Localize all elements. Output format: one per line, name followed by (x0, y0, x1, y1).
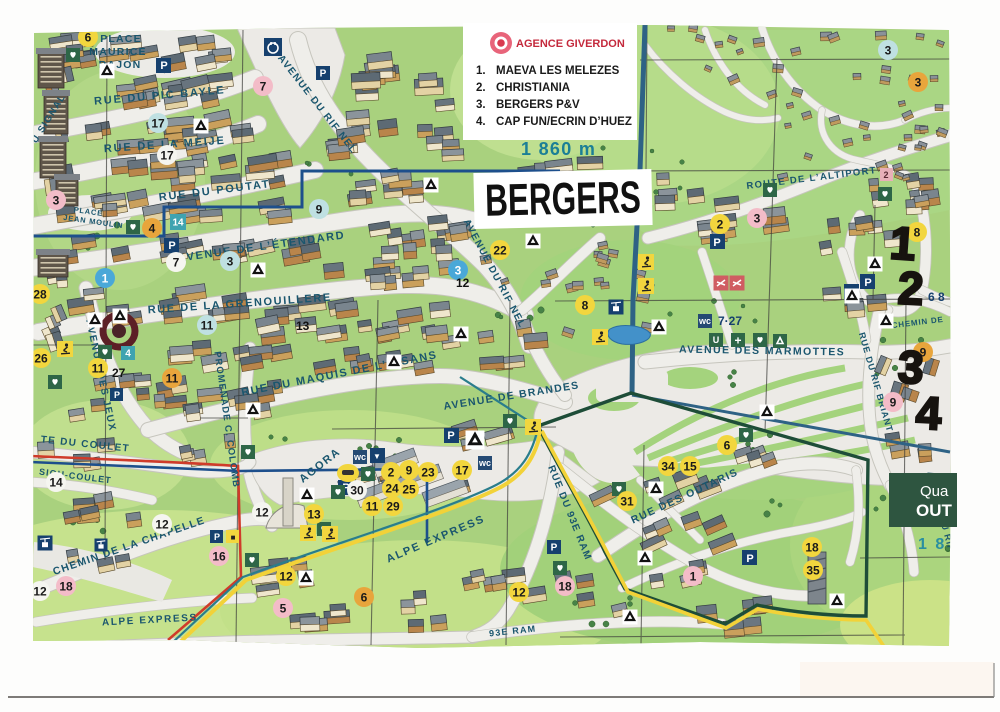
svg-text:12: 12 (279, 569, 293, 583)
svg-text:P: P (214, 532, 220, 542)
svg-text:6 8: 6 8 (928, 290, 945, 304)
svg-text:14: 14 (172, 218, 184, 229)
svg-text:P: P (114, 390, 120, 400)
svg-text:34: 34 (661, 459, 675, 473)
svg-text:2: 2 (717, 217, 724, 231)
svg-text:18: 18 (805, 540, 819, 554)
svg-text:P: P (320, 69, 327, 80)
svg-text:18: 18 (59, 579, 73, 593)
svg-text:9: 9 (316, 202, 323, 216)
svg-text:wc: wc (698, 316, 711, 326)
svg-text:12: 12 (255, 505, 269, 519)
svg-text:13: 13 (307, 507, 321, 521)
svg-text:16: 16 (212, 549, 226, 563)
svg-text:BERGERS P&V: BERGERS P&V (496, 99, 580, 111)
svg-text:28: 28 (33, 287, 47, 301)
svg-text:30: 30 (350, 483, 364, 497)
svg-text:5: 5 (280, 601, 287, 615)
svg-text:13: 13 (296, 319, 310, 333)
svg-text:■: ■ (231, 533, 236, 542)
svg-text:6: 6 (361, 590, 368, 604)
svg-text:P: P (551, 543, 558, 554)
svg-text:8: 8 (582, 298, 589, 312)
svg-text:12: 12 (155, 517, 169, 531)
svg-text:18: 18 (558, 579, 572, 593)
svg-text:+: + (734, 333, 741, 347)
svg-text:4.: 4. (476, 116, 486, 128)
svg-text:3: 3 (885, 43, 892, 57)
svg-text:12: 12 (456, 276, 470, 290)
svg-text:12: 12 (512, 585, 526, 599)
svg-text:12: 12 (33, 584, 47, 598)
svg-text:15: 15 (683, 459, 697, 473)
svg-text:CAP FUN/ECRIN D’HUEZ: CAP FUN/ECRIN D’HUEZ (496, 116, 632, 128)
svg-text:1: 1 (690, 569, 697, 583)
svg-text:BERGERS: BERGERS (485, 173, 642, 226)
svg-text:AGENCE GIVERDON: AGENCE GIVERDON (516, 38, 625, 50)
svg-text:2.: 2. (476, 82, 486, 94)
svg-text:CHRISTIANIA: CHRISTIANIA (496, 82, 570, 94)
svg-text:P: P (746, 553, 753, 565)
svg-text:P: P (168, 240, 175, 252)
svg-text:OUT: OUT (916, 501, 953, 520)
svg-text:3: 3 (754, 211, 761, 225)
svg-text:P: P (447, 430, 454, 442)
svg-text:2: 2 (883, 170, 888, 180)
svg-text:wc: wc (353, 452, 366, 462)
svg-text:4: 4 (149, 221, 156, 235)
svg-text:35: 35 (806, 563, 820, 577)
svg-text:11: 11 (92, 361, 105, 375)
svg-text:9: 9 (890, 395, 897, 409)
svg-text:11: 11 (366, 499, 379, 513)
svg-text:4: 4 (125, 349, 131, 360)
svg-text:P: P (713, 237, 720, 249)
svg-text:▼: ▼ (373, 452, 381, 461)
svg-text:P: P (864, 277, 871, 289)
svg-text:U: U (713, 335, 720, 345)
svg-text:11: 11 (201, 318, 214, 332)
svg-text:1.: 1. (476, 65, 486, 77)
svg-text:27: 27 (112, 366, 126, 380)
svg-text:23: 23 (421, 465, 435, 479)
svg-text:2: 2 (897, 261, 925, 314)
svg-text:22: 22 (493, 243, 507, 257)
svg-text:17: 17 (160, 148, 174, 162)
svg-text:9: 9 (406, 463, 413, 477)
svg-text:14: 14 (49, 475, 63, 489)
svg-text:26: 26 (34, 351, 48, 365)
svg-text:Qua: Qua (920, 483, 949, 500)
svg-text:17: 17 (455, 463, 469, 477)
svg-text:MAEVA LES MELEZES: MAEVA LES MELEZES (496, 65, 620, 77)
svg-text:7: 7 (173, 255, 180, 269)
svg-text:MAURICE: MAURICE (89, 46, 146, 58)
svg-text:3: 3 (915, 75, 922, 89)
svg-text:1: 1 (102, 271, 109, 285)
svg-text:P: P (160, 60, 167, 72)
svg-text:17: 17 (151, 116, 165, 130)
svg-text:7: 7 (260, 79, 267, 93)
svg-text:2: 2 (388, 465, 395, 479)
svg-text:3.: 3. (476, 99, 486, 111)
svg-text:1 860 m: 1 860 m (521, 139, 596, 159)
svg-text:3: 3 (53, 193, 60, 207)
svg-text:29: 29 (386, 499, 400, 513)
svg-text:3: 3 (227, 254, 234, 268)
svg-text:7·27: 7·27 (718, 314, 742, 328)
svg-text:4: 4 (915, 386, 944, 439)
svg-text:6: 6 (724, 438, 731, 452)
svg-text:25: 25 (402, 482, 416, 496)
svg-text:11: 11 (166, 371, 179, 385)
svg-text:1 8: 1 8 (918, 536, 946, 553)
svg-text:31: 31 (620, 494, 634, 508)
svg-text:24: 24 (385, 481, 399, 495)
svg-text:6: 6 (85, 30, 92, 44)
svg-text:PLACE: PLACE (100, 33, 142, 45)
svg-text:wc: wc (478, 458, 491, 468)
